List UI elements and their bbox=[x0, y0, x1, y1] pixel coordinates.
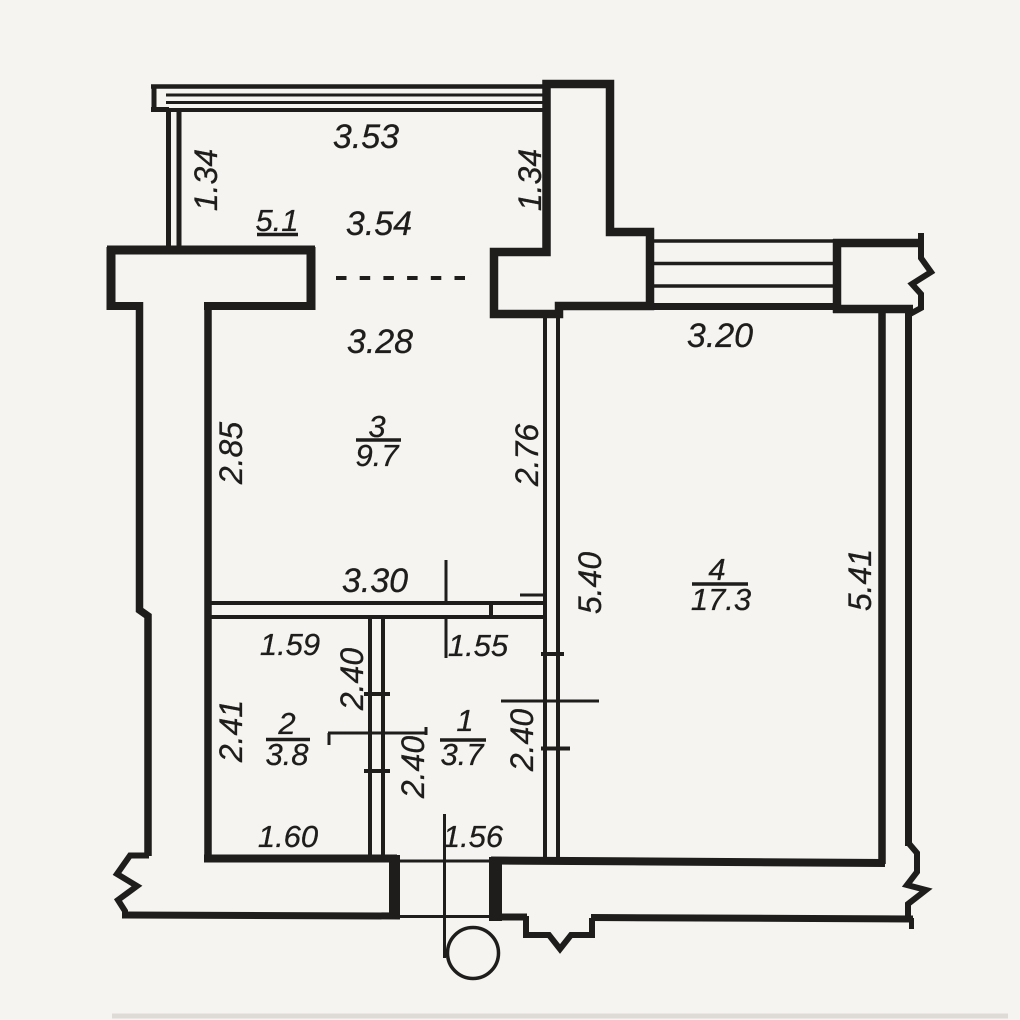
svg-text:2.41: 2.41 bbox=[213, 700, 249, 763]
svg-text:2: 2 bbox=[277, 706, 295, 741]
svg-text:2.40: 2.40 bbox=[395, 736, 431, 799]
svg-text:3.30: 3.30 bbox=[342, 562, 408, 600]
svg-text:1.55: 1.55 bbox=[448, 628, 509, 663]
svg-text:1.34: 1.34 bbox=[512, 149, 548, 211]
svg-text:2.40: 2.40 bbox=[334, 648, 370, 711]
svg-text:1.34: 1.34 bbox=[188, 149, 224, 211]
svg-text:3.54: 3.54 bbox=[346, 205, 412, 243]
svg-text:3.28: 3.28 bbox=[347, 323, 413, 361]
svg-text:2.76: 2.76 bbox=[509, 424, 545, 487]
svg-text:1: 1 bbox=[456, 703, 473, 738]
svg-text:17.3: 17.3 bbox=[691, 582, 751, 617]
svg-text:3.53: 3.53 bbox=[333, 118, 399, 156]
svg-text:5.41: 5.41 bbox=[842, 549, 878, 611]
svg-text:1.59: 1.59 bbox=[260, 627, 320, 662]
svg-text:3.8: 3.8 bbox=[265, 737, 309, 772]
svg-text:1.60: 1.60 bbox=[258, 819, 318, 854]
svg-text:5.1: 5.1 bbox=[255, 203, 298, 238]
svg-text:3.20: 3.20 bbox=[687, 317, 753, 355]
svg-text:3.7: 3.7 bbox=[440, 737, 485, 772]
svg-text:2.40: 2.40 bbox=[504, 709, 540, 772]
svg-text:5.40: 5.40 bbox=[572, 552, 608, 614]
svg-text:1.56: 1.56 bbox=[443, 819, 504, 854]
svg-text:9.7: 9.7 bbox=[355, 438, 400, 473]
svg-text:2.85: 2.85 bbox=[213, 422, 249, 485]
